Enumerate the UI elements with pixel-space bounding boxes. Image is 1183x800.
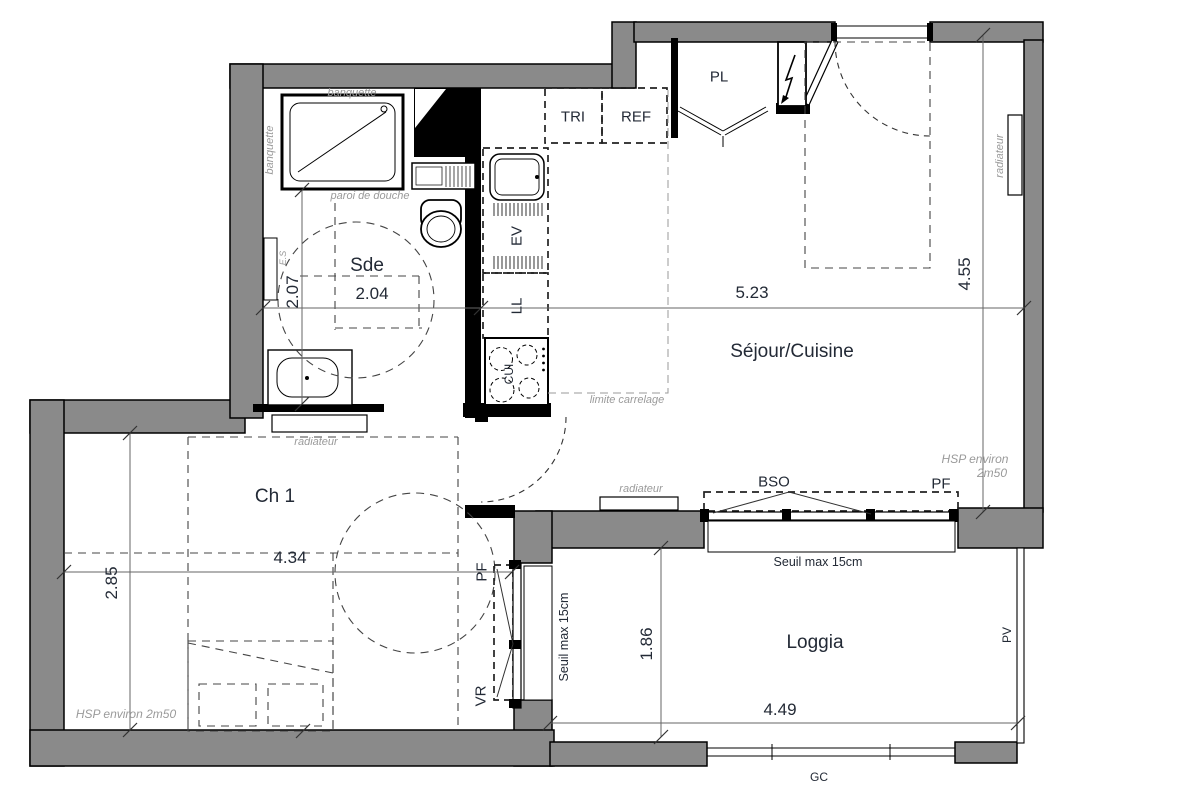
label-seuil-sejour: Seuil max 15cm [774,555,863,569]
toilet [421,200,461,247]
dim-sejour-width: 5.23 [735,283,768,303]
dim-sde-width: 2.04 [355,284,388,304]
shower [282,95,403,189]
cooktop [485,338,548,405]
label-paroi-de-douche: paroi de douche [331,190,410,202]
label-hsp-ch1: HSP environ 2m50 [76,707,176,721]
room-name-sejour: Séjour/Cuisine [730,341,854,363]
room-name-loggia: Loggia [786,632,843,654]
window-sill [708,521,955,552]
wall-niche [264,238,277,300]
label-seuil-ch1: Seuil max 15cm [557,593,571,682]
loggia-railing-gc [707,744,955,760]
label-hsp-sejour-line1: HSP environ [942,452,1009,466]
label-pv: PV [1000,627,1014,643]
label-ll: LL [509,298,526,315]
sde-door-swing [481,417,566,502]
dim-loggia-width: 4.49 [763,700,796,720]
label-vr: VR [473,686,490,707]
pillow [199,684,256,726]
label-ev: EV [509,226,526,246]
label-pf-ch1: PF [474,562,491,581]
label-radiateur-sde: radiateur [294,436,337,448]
label-pl: PL [710,69,728,86]
bed-ch1 [188,641,333,731]
sejour-window [700,492,958,552]
technical-duct [412,88,475,189]
label-hsp-sejour-line2: 2m50 [977,466,1007,480]
label-bso: BSO [758,474,790,491]
electrical-panel [778,42,806,106]
room-name-ch1: Ch 1 [255,486,295,508]
washbasin [268,350,352,405]
closet-doors [678,107,768,147]
label-tri: TRI [561,109,585,126]
tiling-limit-line [548,90,668,393]
kitchen-sink-unit [483,148,548,273]
entry-door-swing [835,41,930,136]
bso-housing [704,492,958,511]
dim-ch1-depth: 2.85 [102,566,122,599]
label-gc: GC [810,770,828,784]
label-pf-sejour: PF [931,476,950,493]
ch1-window [494,560,552,708]
label-es: E.S [278,251,288,266]
dim-loggia-depth: 1.86 [637,627,657,660]
label-radiateur-right: radiateur [994,134,1006,177]
dim-sde-depth: 2.07 [283,275,303,308]
label-ref: REF [621,109,651,126]
floor-plan: Sde 2.04 2.07 Séjour/Cuisine 5.23 4.55 C… [0,0,1183,800]
loggia-glazing-pv [1017,548,1024,743]
pillow [268,684,323,726]
window-sill [524,566,552,700]
dim-ch1-width: 4.34 [273,548,306,568]
bed-sejour [805,42,930,268]
label-banquette-v: banquette [264,126,276,175]
room-name-sde: Sde [350,255,384,277]
label-radiateur-sejour: radiateur [619,483,662,495]
label-banquette-h: banquette [328,87,377,99]
dim-sejour-depth: 4.55 [955,257,975,290]
label-limite-carrelage: limite carrelage [590,394,665,406]
entry-door-leaf [803,40,838,105]
label-cui: CUI [502,364,516,385]
